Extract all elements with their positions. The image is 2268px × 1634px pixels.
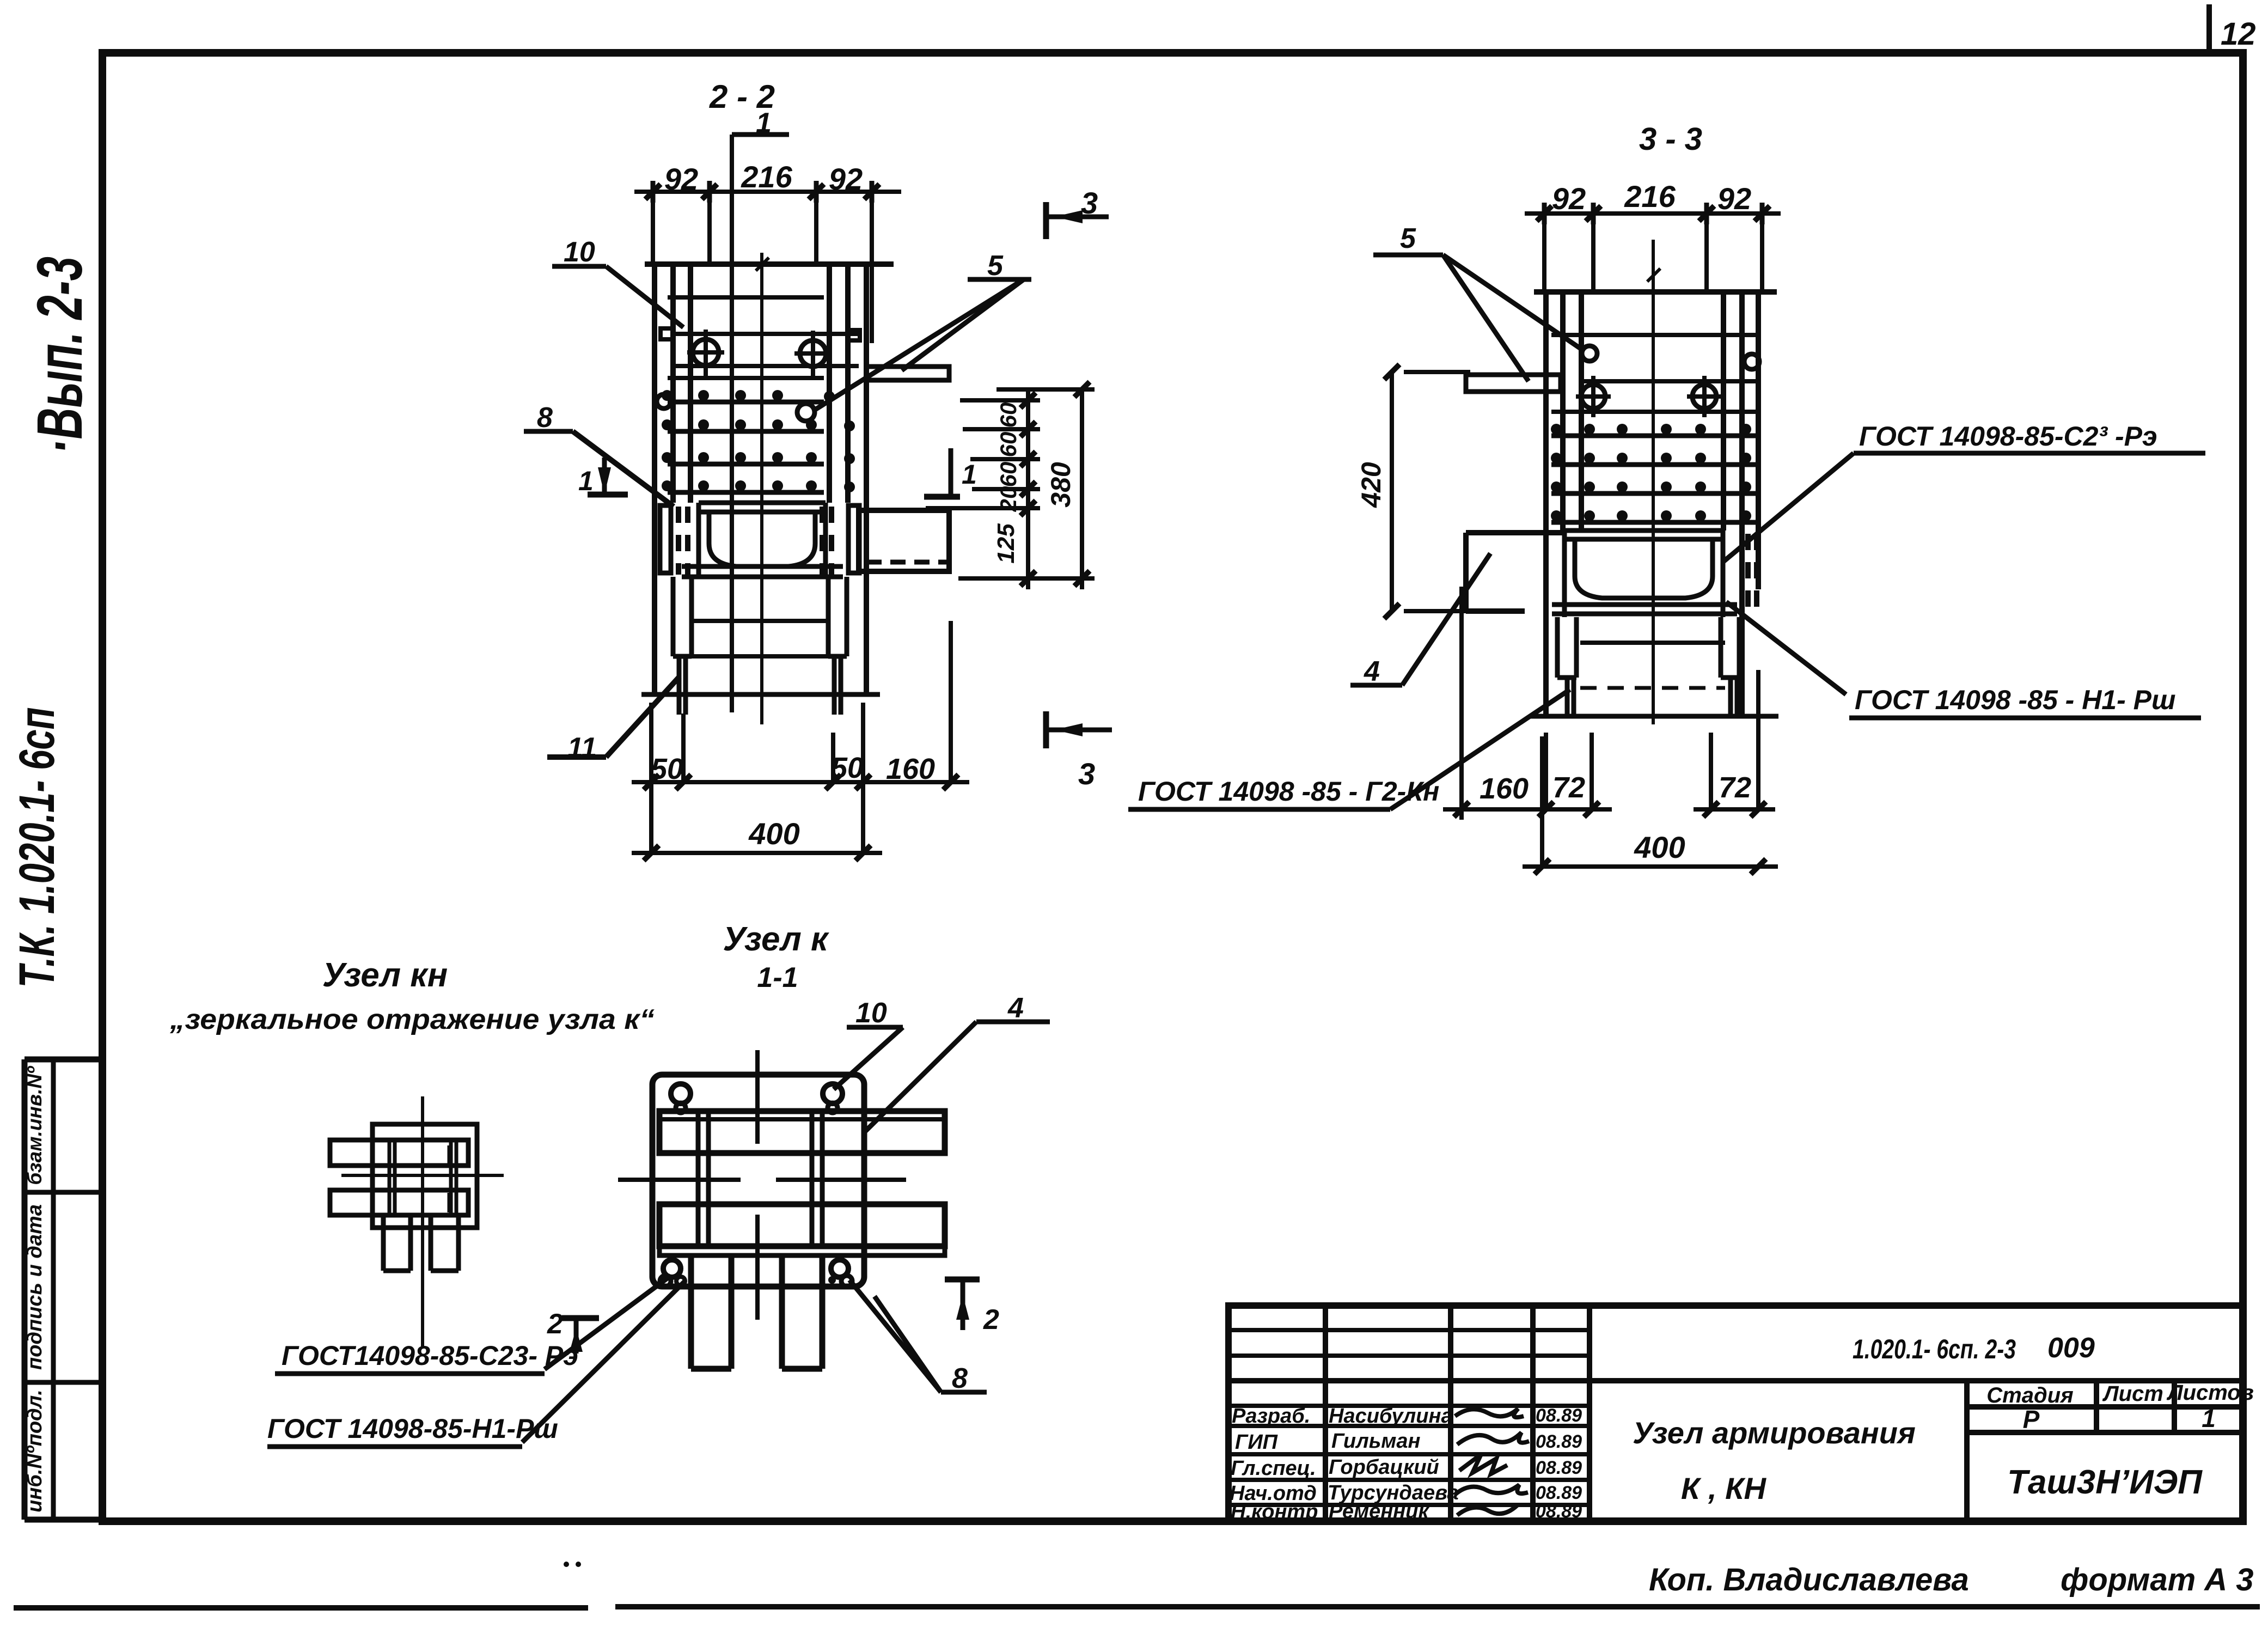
svg-text:72: 72 [1719, 771, 1751, 804]
svg-text:ГОСТ14098-85-С23- Рэ: ГОСТ14098-85-С23- Рэ [282, 1340, 578, 1371]
svg-text:Насибулина: Насибулина [1329, 1405, 1453, 1428]
svg-text:Узел армирования: Узел армирования [1633, 1416, 1916, 1450]
svg-text:72: 72 [1552, 771, 1585, 804]
svg-text:420: 420 [1356, 462, 1386, 508]
svg-text:1: 1 [578, 466, 594, 496]
svg-text:Листов: Листов [2166, 1381, 2254, 1405]
svg-text:Разраб.: Разраб. [1232, 1405, 1310, 1428]
svg-text:5: 5 [1400, 223, 1416, 254]
svg-text:08.89: 08.89 [1536, 1483, 1582, 1503]
svg-text:08.89: 08.89 [1536, 1431, 1582, 1452]
svg-text:4: 4 [1364, 656, 1380, 687]
svg-text:ГОСТ 14098-85-Н1-Рш: ГОСТ 14098-85-Н1-Рш [267, 1413, 558, 1444]
svg-text:92: 92 [1717, 181, 1751, 216]
svg-text:50: 50 [831, 752, 864, 784]
svg-text:4: 4 [1007, 992, 1024, 1024]
svg-text:216: 216 [1624, 179, 1676, 214]
svg-text:1-1: 1-1 [757, 962, 798, 993]
svg-text:Коп. Владиславлева: Коп. Владиславлева [1649, 1562, 1969, 1598]
svg-text:3: 3 [1081, 186, 1098, 220]
svg-text:92: 92 [1552, 181, 1586, 216]
svg-text:60: 60 [995, 462, 1021, 487]
svg-text:400: 400 [748, 816, 799, 851]
svg-text:Ременник: Ременник [1329, 1500, 1429, 1523]
svg-text:3 - 3: 3 - 3 [1639, 121, 1702, 157]
svg-text:60: 60 [995, 432, 1021, 458]
svg-text:8: 8 [537, 402, 553, 434]
svg-text:ГОСТ 14098-85-С2³ -Рэ: ГОСТ 14098-85-С2³ -Рэ [1859, 421, 2157, 452]
svg-text:Узел кн: Узел кн [322, 956, 448, 994]
svg-text:1: 1 [962, 459, 977, 490]
svg-text:12: 12 [2221, 16, 2256, 52]
svg-text:08.89: 08.89 [1536, 1458, 1582, 1478]
svg-text:92: 92 [829, 162, 863, 196]
svg-text:формат А 3: формат А 3 [2061, 1562, 2254, 1598]
svg-text:380: 380 [1046, 462, 1076, 508]
svg-text:инб.Nºподл.: инб.Nºподл. [23, 1389, 46, 1513]
svg-text:2: 2 [547, 1308, 563, 1340]
svg-text:216: 216 [741, 160, 792, 194]
svg-text:Т.К. 1.020.1- 6сп: Т.К. 1.020.1- 6сп [9, 708, 65, 988]
svg-text:1: 1 [2202, 1404, 2216, 1432]
svg-text:Узел к: Узел к [723, 920, 829, 958]
svg-text:Гильман: Гильман [1331, 1430, 1421, 1453]
svg-text:Таш3НʼИЭП: Таш3НʼИЭП [2007, 1464, 2203, 1501]
svg-text:ГИП: ГИП [1235, 1431, 1278, 1454]
svg-text:10: 10 [855, 997, 887, 1029]
svg-text:08.89: 08.89 [1536, 1501, 1582, 1522]
svg-text:3: 3 [1078, 757, 1095, 791]
svg-text:1.020.1- 6сп. 2-3: 1.020.1- 6сп. 2-3 [1853, 1334, 2016, 1364]
svg-text:Н.контр: Н.контр [1231, 1501, 1318, 1523]
svg-text:50: 50 [651, 753, 683, 785]
svg-text:К , КН: К , КН [1681, 1471, 1767, 1505]
svg-text:8: 8 [952, 1363, 968, 1394]
svg-text:бзам.инв.Nº: бзам.инв.Nº [23, 1066, 46, 1185]
svg-text:подпись и дата: подпись и дата [23, 1204, 46, 1370]
svg-text:20: 20 [995, 486, 1021, 513]
svg-text:Лист: Лист [2102, 1382, 2163, 1406]
svg-text:ГОСТ 14098 -85 - Г2-Кн: ГОСТ 14098 -85 - Г2-Кн [1138, 776, 1439, 807]
svg-text:Р: Р [2023, 1405, 2040, 1434]
svg-text:Гл.спец.: Гл.спец. [1231, 1457, 1316, 1480]
svg-text:10: 10 [564, 236, 595, 268]
svg-text:2: 2 [983, 1304, 999, 1336]
svg-text:1: 1 [756, 107, 772, 139]
svg-text:08.89: 08.89 [1536, 1405, 1582, 1426]
svg-text:„зеркальное отражение узла к“: „зеркальное отражение узла к“ [169, 1004, 655, 1035]
svg-text:160: 160 [1480, 772, 1529, 805]
svg-text:60: 60 [995, 403, 1021, 428]
svg-text:160: 160 [886, 753, 935, 785]
svg-text:009: 009 [2047, 1332, 2095, 1364]
svg-text:5: 5 [987, 250, 1004, 282]
svg-text:Горбацкий: Горбацкий [1329, 1456, 1439, 1479]
svg-text:ГОСТ 14098 -85 - Н1- Рш: ГОСТ 14098 -85 - Н1- Рш [1855, 685, 2175, 715]
svg-text:Стадия: Стадия [1986, 1383, 2073, 1407]
svg-text:125: 125 [993, 523, 1019, 564]
svg-text:92: 92 [664, 162, 698, 196]
svg-text:·Вып. 2-3: ·Вып. 2-3 [24, 257, 96, 454]
svg-text:400: 400 [1634, 830, 1685, 864]
